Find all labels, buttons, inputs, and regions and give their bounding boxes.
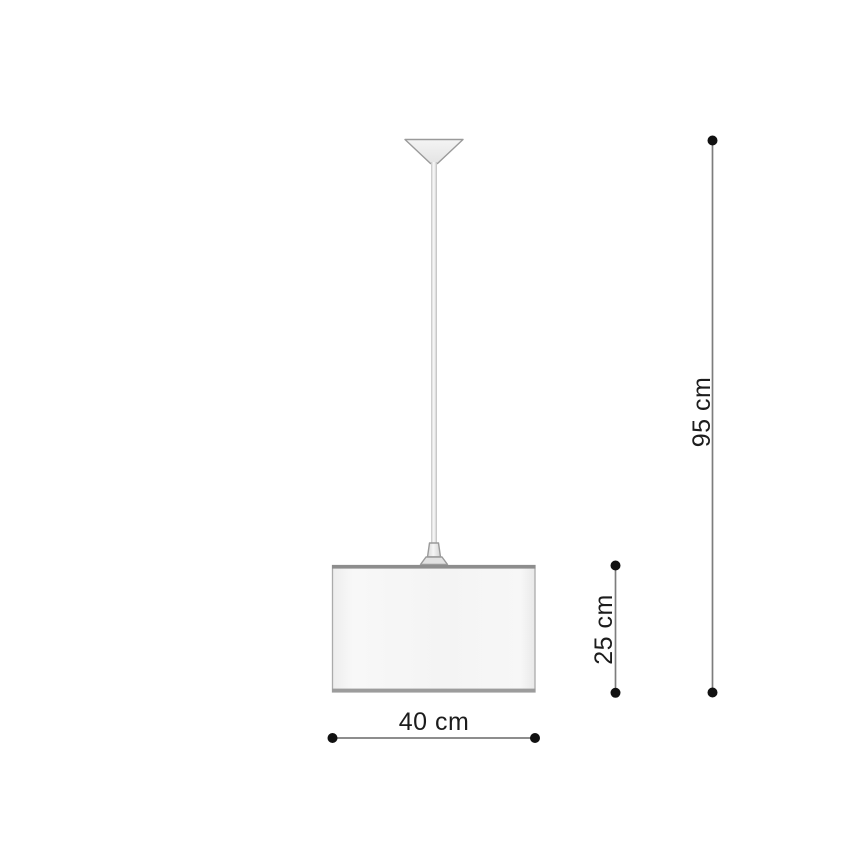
- dimension-total-height: 95 cm: [688, 136, 718, 698]
- pendant-lamp-diagram-svg: 95 cm 25 cm 40 cm: [0, 0, 868, 868]
- shade-bottom-rim: [332, 689, 536, 693]
- pendant-lamp-drawing: [332, 140, 536, 693]
- dimension-label-shade-width: 40 cm: [399, 708, 470, 736]
- pendant-cable: [431, 162, 437, 545]
- dimension-shade-width: 40 cm: [328, 708, 541, 743]
- dimension-dot-right: [530, 733, 540, 743]
- dimension-dot-bottom: [611, 688, 621, 698]
- shade-top-rim: [332, 565, 536, 569]
- dimension-shade-height: 25 cm: [590, 561, 621, 698]
- dimension-diagram: 95 cm 25 cm 40 cm: [0, 0, 868, 868]
- dimension-dot-bottom: [708, 688, 718, 698]
- dimension-label-total-height: 95 cm: [688, 377, 716, 448]
- dimension-dot-top: [611, 561, 621, 571]
- socket-flange: [421, 557, 448, 565]
- ceiling-canopy: [405, 140, 463, 164]
- dimension-label-shade-height: 25 cm: [590, 594, 618, 665]
- dimension-dot-top: [708, 136, 718, 146]
- socket-neck: [428, 543, 441, 557]
- dimension-dot-left: [328, 733, 338, 743]
- lamp-shade: [333, 566, 536, 693]
